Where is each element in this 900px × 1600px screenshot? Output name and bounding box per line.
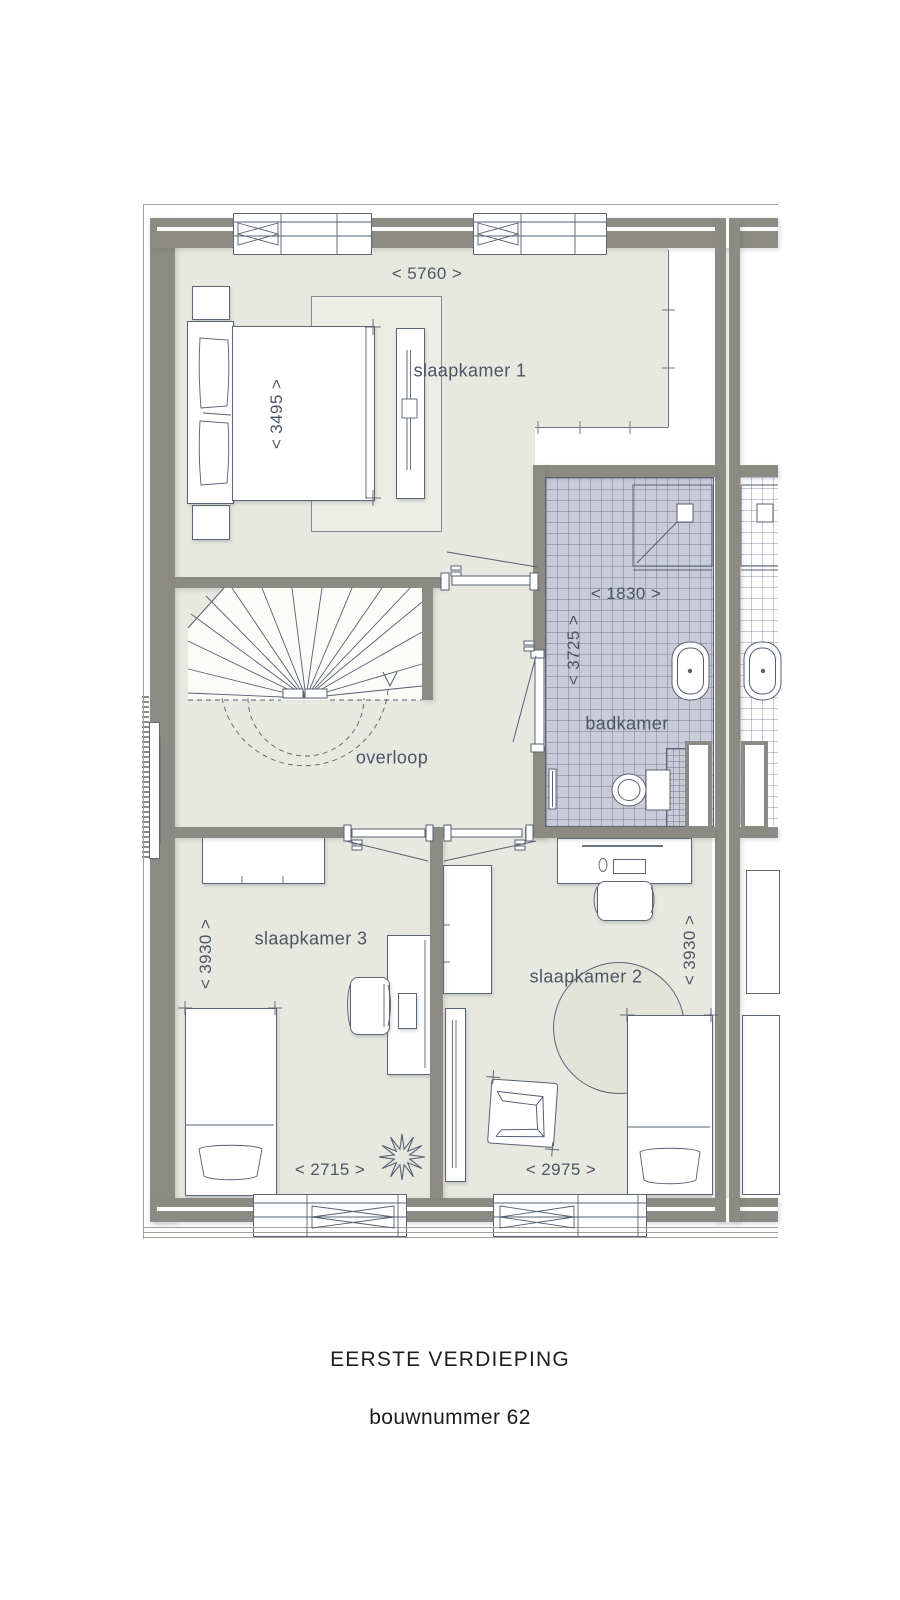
staircase — [188, 588, 422, 766]
plant — [379, 1134, 425, 1180]
door-slaapkamer3 — [344, 825, 433, 861]
room-label-badkamer: badkamer — [585, 714, 668, 735]
room-label-slaapkamer3: slaapkamer 3 — [255, 929, 368, 950]
door-slaapkamer2 — [444, 825, 536, 861]
dim-slaapkamer2-depth: < 3930 > — [680, 915, 700, 985]
neighbor-fixtures — [741, 485, 781, 700]
door-slaapkamer1 — [441, 552, 538, 590]
dim-badkamer-depth: < 3725 > — [564, 615, 584, 685]
dim-slaapkamer1-width: < 5760 > — [392, 264, 462, 284]
floorplan-canvas: < 5760 > slaapkamer 1 < 3495 > < 1830 > … — [0, 0, 900, 1600]
dim-badkamer-width: < 1830 > — [591, 584, 661, 604]
room-label-slaapkamer1: slaapkamer 1 — [414, 361, 527, 382]
dim-slaapkamer2-width: < 2975 > — [526, 1160, 596, 1180]
door-badkamer — [513, 641, 544, 752]
caption-unit-number: bouwnummer 62 — [369, 1406, 531, 1430]
furniture-detail-lines — [178, 319, 718, 1184]
dim-slaapkamer1-depth: < 3495 > — [267, 379, 287, 449]
caption-floor-name: EERSTE VERDIEPING — [330, 1348, 570, 1372]
shower — [633, 485, 712, 570]
slaapkamer1-slope-boundary — [535, 250, 675, 434]
armchair-slaapkamer2 — [481, 1070, 565, 1157]
dim-slaapkamer3-width: < 2715 > — [295, 1160, 365, 1180]
radiator-badkamer — [549, 769, 556, 809]
washbasin — [672, 642, 709, 700]
toilet — [612, 770, 670, 810]
room-label-slaapkamer2: slaapkamer 2 — [530, 967, 643, 988]
room-label-overloop: overloop — [356, 748, 428, 769]
dim-slaapkamer3-depth: < 3930 > — [196, 919, 216, 989]
